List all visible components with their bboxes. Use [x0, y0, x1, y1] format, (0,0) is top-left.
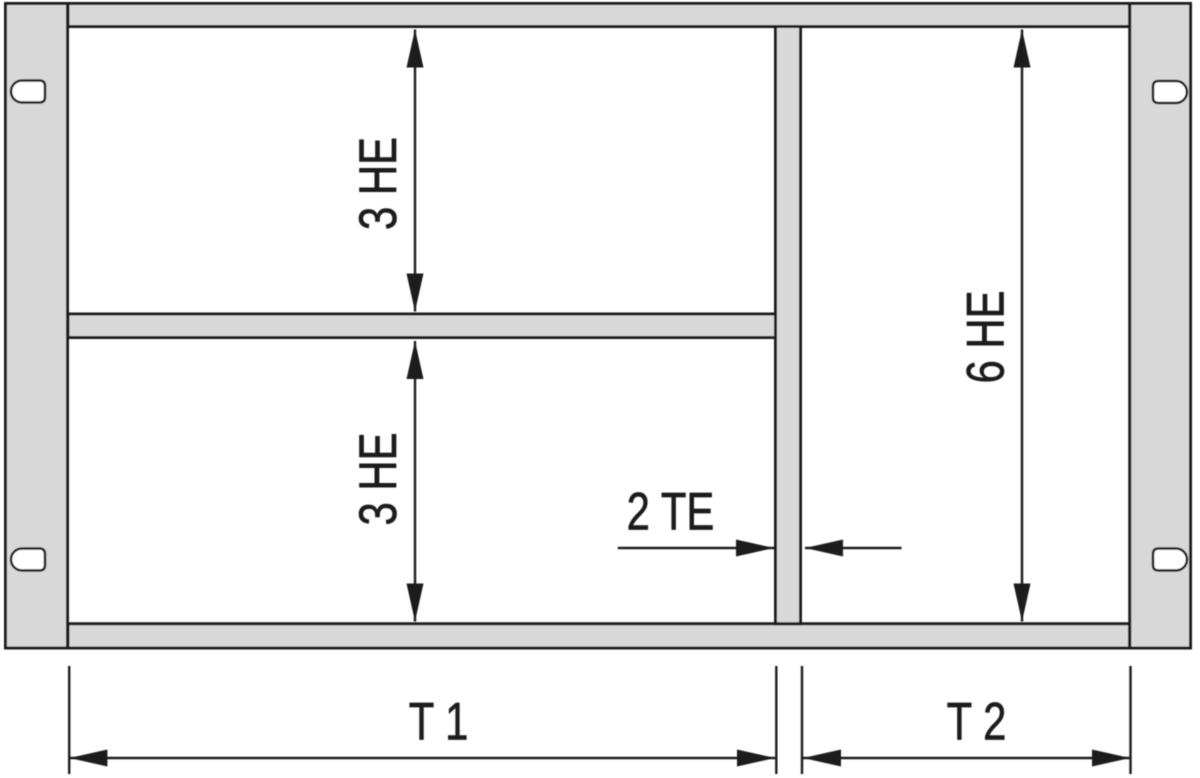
svg-text:2 TE: 2 TE [627, 483, 715, 542]
svg-text:T 1: T 1 [409, 693, 469, 752]
svg-text:T 2: T 2 [947, 693, 1007, 752]
svg-text:6 HE: 6 HE [957, 290, 1016, 383]
svg-text:3 HE: 3 HE [349, 432, 408, 525]
svg-text:3 HE: 3 HE [349, 137, 408, 230]
